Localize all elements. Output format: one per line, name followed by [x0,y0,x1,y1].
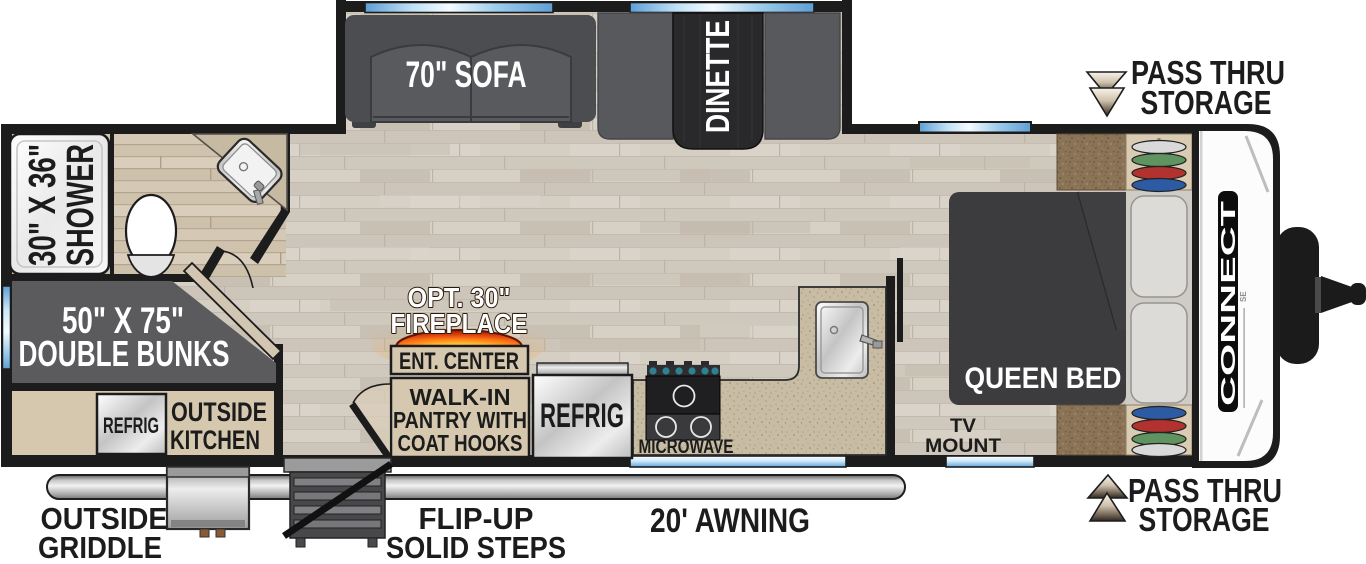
svg-text:REFRIG: REFRIG [103,413,159,438]
svg-text:DINETTE: DINETTE [699,20,736,133]
svg-text:ENT. CENTER: ENT. CENTER [399,348,519,375]
svg-text:QUEEN BED: QUEEN BED [965,362,1122,395]
svg-text:MICROWAVE: MICROWAVE [639,437,734,458]
svg-text:STORAGE: STORAGE [1141,84,1272,121]
svg-text:KITCHEN: KITCHEN [170,425,260,455]
svg-text:COAT HOOKS: COAT HOOKS [398,430,523,456]
svg-text:20' AWNING: 20' AWNING [650,502,810,540]
svg-text:DOUBLE BUNKS: DOUBLE BUNKS [19,333,230,374]
svg-text:SE: SE [1239,291,1248,302]
svg-text:TV: TV [950,416,976,437]
svg-text:REFRIG: REFRIG [540,397,624,435]
svg-text:MOUNT: MOUNT [925,436,1001,457]
svg-text:SOLID STEPS: SOLID STEPS [386,530,566,564]
svg-text:GRIDDLE: GRIDDLE [38,530,162,564]
svg-text:SHOWER: SHOWER [60,144,102,266]
svg-text:STORAGE: STORAGE [1139,501,1270,538]
svg-text:FIREPLACE: FIREPLACE [391,308,528,339]
svg-text:70" SOFA: 70" SOFA [406,54,527,95]
svg-text:30" X 36": 30" X 36" [22,144,64,266]
svg-text:OUTSIDE: OUTSIDE [171,397,267,427]
svg-text:CONNECT: CONNECT [1218,201,1240,406]
